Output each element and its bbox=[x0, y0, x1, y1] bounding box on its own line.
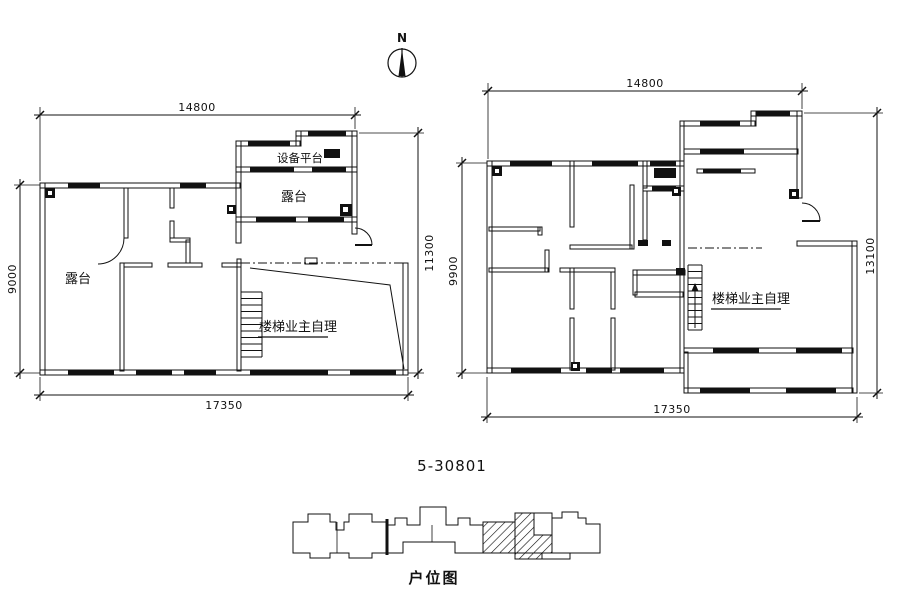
left-plan-windows bbox=[45, 131, 396, 375]
right-plan-interior-walls bbox=[489, 161, 685, 370]
left-plan-outer-walls bbox=[40, 131, 408, 375]
right-dim-bottom-label: 17350 bbox=[653, 403, 691, 416]
right-stairs-note-label: 楼梯业主自理 bbox=[712, 292, 790, 307]
left-plan-interior-walls bbox=[120, 188, 317, 371]
door-arc-icon bbox=[802, 203, 820, 221]
key-plan-middle-block bbox=[387, 507, 483, 553]
key-plan-highlight-tab bbox=[515, 553, 542, 559]
key-plan: 户位图 bbox=[293, 507, 600, 587]
key-plan-label: 户位图 bbox=[408, 569, 459, 587]
plan-title: 5-30801 bbox=[417, 457, 487, 475]
left-plan-door-swings bbox=[98, 228, 372, 264]
key-plan-tab-white bbox=[542, 553, 570, 559]
right-dim-right: 13100 bbox=[804, 107, 883, 399]
left-dim-bottom-label: 17350 bbox=[205, 399, 243, 412]
floorplan-drawing: N bbox=[0, 0, 900, 600]
right-dim-top-label: 14800 bbox=[626, 77, 664, 90]
north-label: N bbox=[397, 31, 407, 45]
left-dim-left-label: 9000 bbox=[6, 264, 19, 294]
left-dim-top: 14800 bbox=[34, 101, 361, 181]
right-dim-bottom: 17350 bbox=[481, 377, 863, 423]
right-dim-left-label: 9900 bbox=[447, 256, 460, 286]
left-plan-open-area-lines bbox=[241, 263, 404, 369]
left-dim-left: 9000 bbox=[6, 179, 40, 379]
right-dim-top: 14800 bbox=[482, 77, 808, 159]
north-arrow-icon: N bbox=[388, 31, 416, 77]
left-dim-top-label: 14800 bbox=[178, 101, 216, 114]
left-dim-right-label: 11300 bbox=[423, 234, 436, 272]
door-arc-icon bbox=[355, 228, 372, 245]
left-dim-bottom: 17350 bbox=[34, 377, 414, 412]
right-dim-left: 9900 bbox=[447, 157, 487, 379]
door-arc-icon bbox=[98, 238, 124, 264]
left-floor-plan: 设备平台 露台 露台 楼梯业主自理 14800 9000 bbox=[6, 101, 436, 412]
left-dim-right: 11300 bbox=[359, 127, 436, 379]
right-dim-right-label: 13100 bbox=[864, 237, 877, 275]
key-plan-unit-notch bbox=[534, 513, 552, 535]
left-stairs-note-label: 楼梯业主自理 bbox=[259, 320, 337, 335]
right-plan-stairs bbox=[688, 248, 762, 330]
right-floor-plan: 楼梯业主自理 14800 9900 bbox=[447, 77, 883, 423]
left-room-equipment-platform-label: 设备平台 bbox=[277, 151, 323, 165]
key-plan-right-block bbox=[552, 512, 600, 553]
left-room-terrace-upper-label: 露台 bbox=[281, 190, 307, 205]
drawing-sheet: N bbox=[0, 0, 900, 600]
key-plan-left-block bbox=[293, 514, 387, 558]
left-room-terrace-left-label: 露台 bbox=[65, 272, 91, 287]
left-plan-dimensions: 14800 9000 11300 bbox=[6, 101, 436, 412]
right-plan-door-swings bbox=[802, 203, 820, 221]
left-stairs-note: 楼梯业主自理 bbox=[258, 320, 337, 337]
right-stairs-note: 楼梯业主自理 bbox=[711, 292, 790, 309]
